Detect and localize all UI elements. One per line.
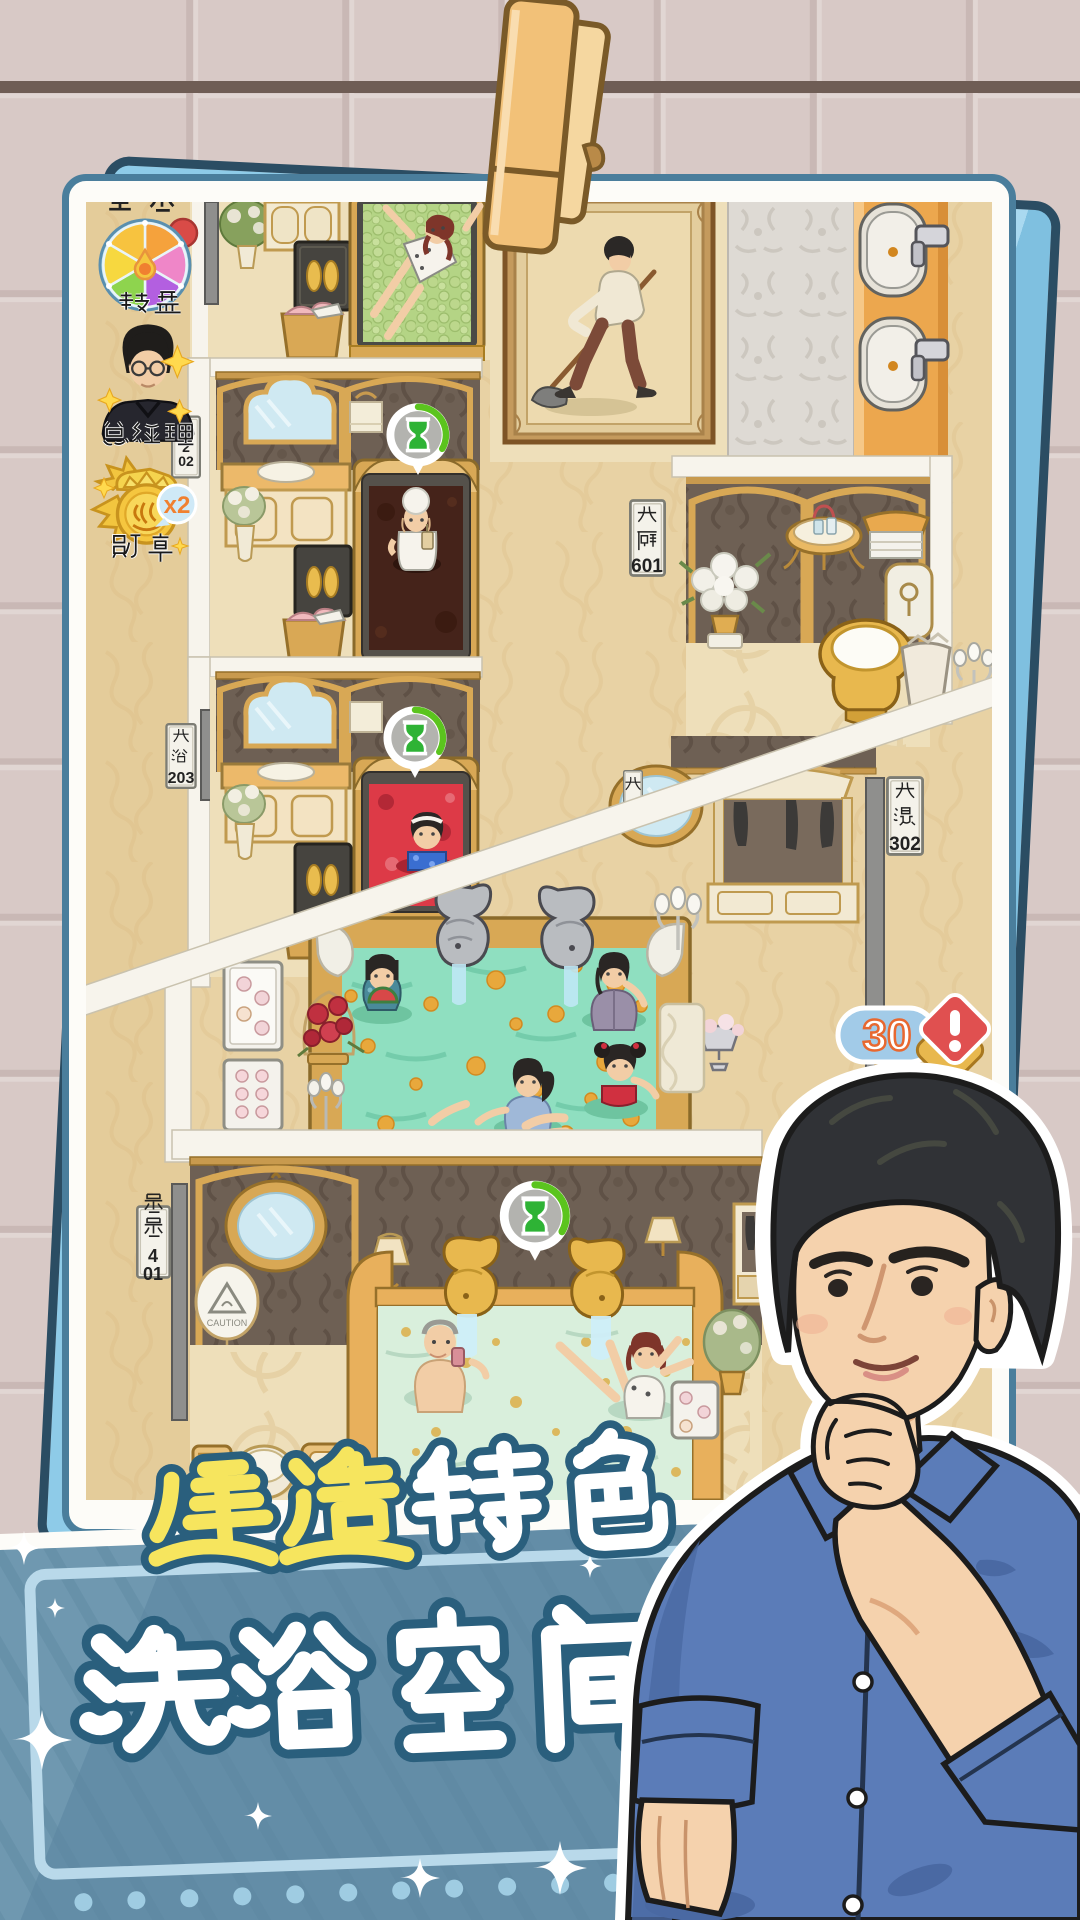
svg-text:601: 601 [631,556,663,577]
svg-text:302: 302 [889,834,921,855]
svg-text:x2: x2 [164,492,191,519]
svg-text:01: 01 [143,1264,163,1284]
svg-text:4: 4 [148,1246,158,1266]
svg-text:02: 02 [178,453,194,469]
svg-text:203: 203 [168,770,195,787]
svg-text:CAUTION: CAUTION [207,1318,248,1328]
